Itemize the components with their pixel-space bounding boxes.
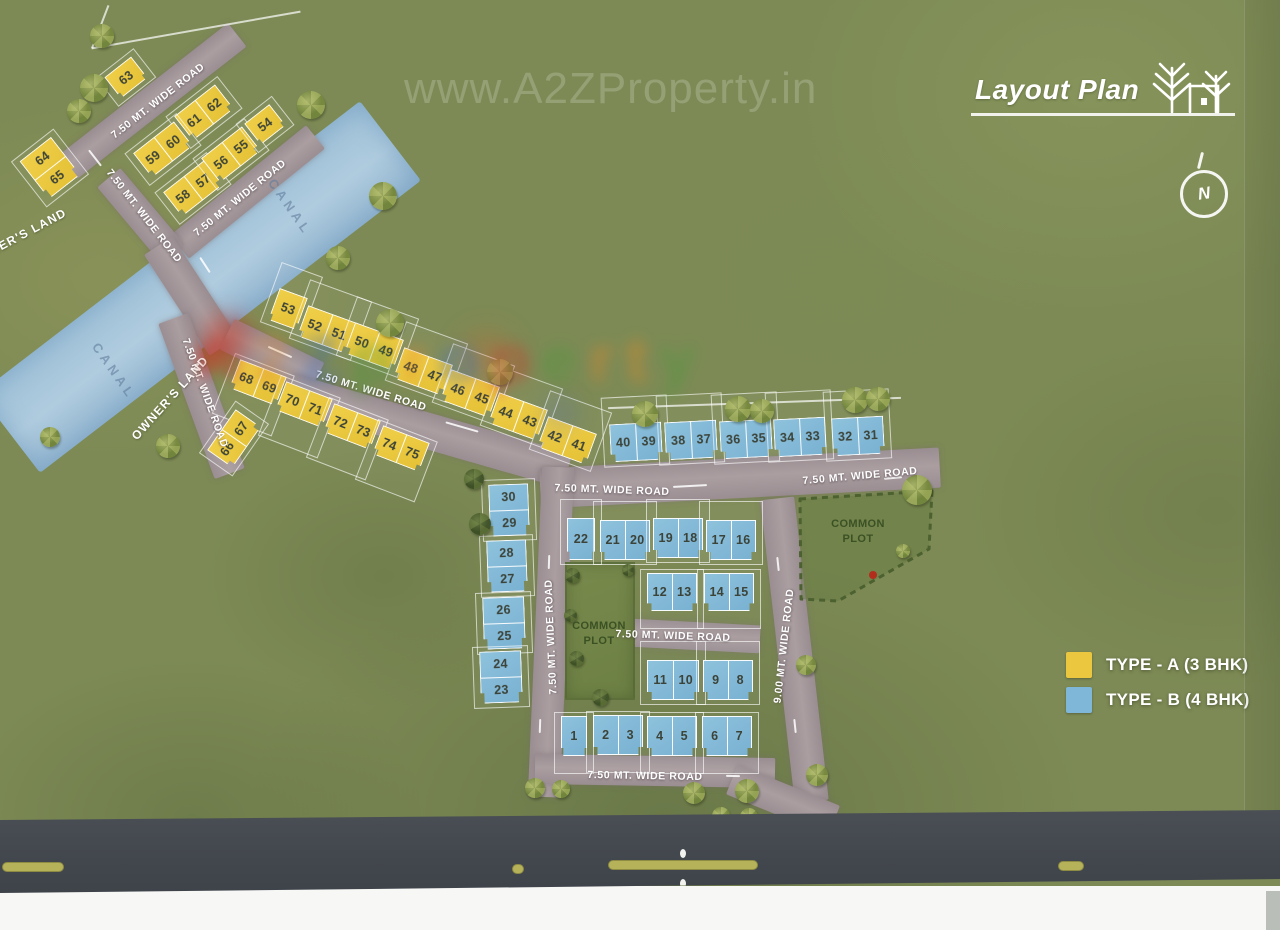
watermark-letter: o (440, 322, 479, 396)
lane-marking-bar (512, 864, 524, 874)
builder-logo-icon (1148, 52, 1240, 116)
scan-edge-artifact (1244, 0, 1280, 815)
legend-item-type-a: TYPE - A (3 BHK) (1066, 652, 1250, 678)
legend: TYPE - A (3 BHK) TYPE - B (4 BHK) (1066, 652, 1250, 722)
watermark-url: www.A2ZProperty.in (404, 64, 909, 114)
asphalt-road-bottom (0, 810, 1280, 894)
compass-north-letter: N (1197, 183, 1212, 205)
watermark-letter: t (626, 322, 647, 396)
watermark-letter: 2 (253, 322, 289, 396)
watermark-letter: p (491, 322, 530, 396)
scan-corner-artifact (1266, 891, 1280, 930)
lane-marking-bar (1058, 861, 1084, 871)
watermark-letter: e (542, 322, 578, 396)
watermark-letter: y (659, 322, 695, 396)
watermark-letter: A (195, 322, 241, 396)
watermark-letter: r (403, 322, 428, 396)
scan-bottom-margin (0, 886, 1280, 930)
type-b-label: TYPE - B (4 BHK) (1106, 690, 1250, 710)
lane-marking-bar (2, 862, 64, 872)
north-compass-icon: N (1180, 170, 1228, 218)
type-b-swatch (1066, 687, 1092, 713)
legend-item-type-b: TYPE - B (4 BHK) (1066, 687, 1250, 713)
watermark-letter: r (589, 322, 614, 396)
lane-marking-dot (680, 849, 686, 858)
watermark-letter: p (352, 322, 391, 396)
type-a-swatch (1066, 652, 1092, 678)
compass-needle (1197, 152, 1204, 169)
lane-marking-bar (608, 860, 758, 870)
overlay-layer: www.A2ZProperty.in A2Zproperty Layout Pl… (0, 0, 1280, 930)
type-a-label: TYPE - A (3 BHK) (1106, 655, 1248, 675)
watermark-letter: Z (301, 322, 340, 396)
layout-plan-scan: 6364656162596058575655545352515049484746… (0, 0, 1280, 930)
watermark-logo-blur: A2Zproperty (195, 316, 695, 402)
page-title: Layout Plan (975, 74, 1139, 106)
